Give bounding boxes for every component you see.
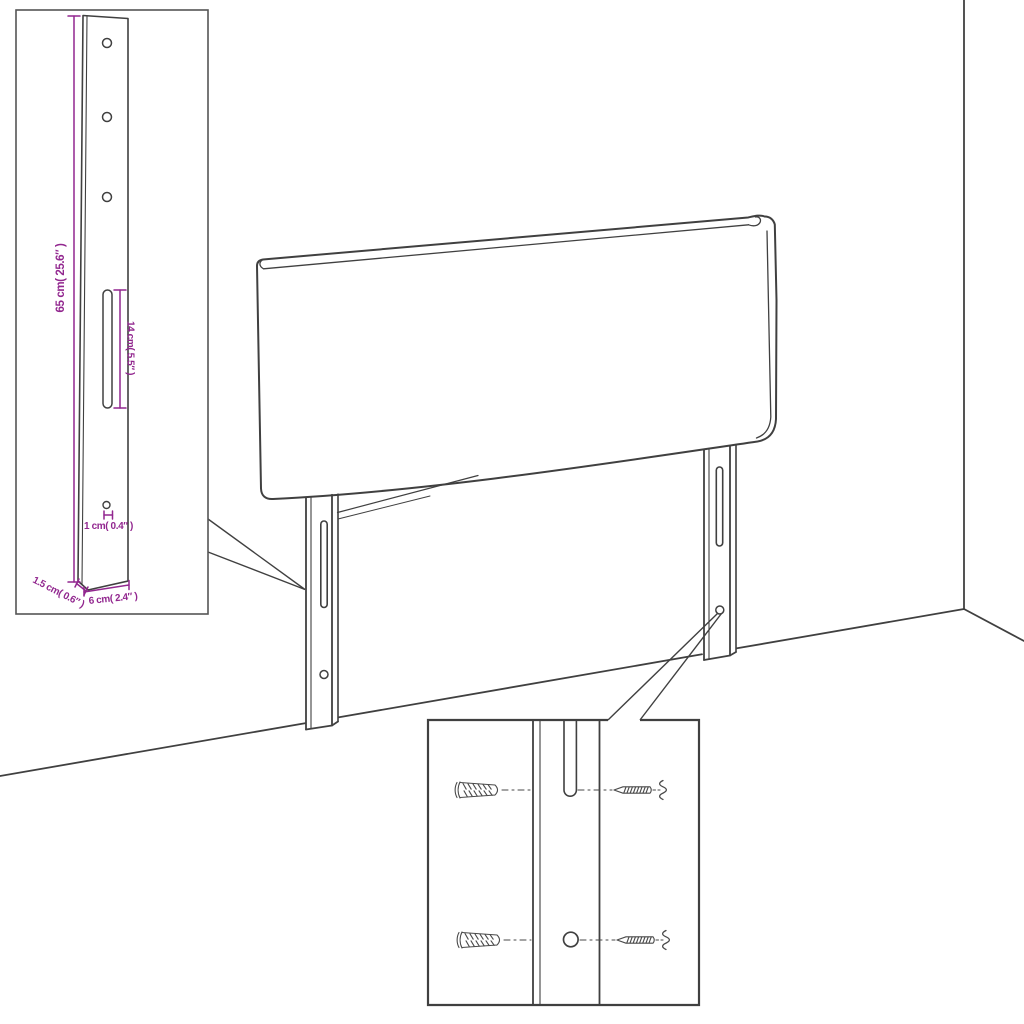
inset-leader-lines-left: [208, 519, 305, 590]
headboard-assembly-diagram: 65 cm( 25.6″ ) 14 cm( 5.5″ ) 1 cm( 0.4″ …: [0, 0, 1024, 1024]
left-leg: [306, 494, 338, 729]
hole-dimension-label: 1 cm( 0.4″ ): [84, 521, 133, 532]
leg-screw-hole: [320, 671, 328, 679]
height-dimension-label: 65 cm( 25.6″ ): [55, 243, 67, 313]
screw-icon: [614, 781, 666, 800]
leader-line: [208, 552, 305, 590]
leader-line: [608, 614, 718, 721]
leg-screw-hole: [716, 606, 724, 614]
spring-symbol-icon: [660, 781, 667, 800]
strip-slot: [564, 721, 576, 796]
floor-line-left-b: [339, 654, 702, 717]
right-leg: [704, 446, 736, 660]
hardware-inset: [428, 720, 699, 1005]
bracket-hole-3: [103, 193, 112, 202]
leader-line: [640, 614, 722, 721]
magnified-leg-strip: [533, 721, 600, 1004]
strip-screw-hole: [564, 932, 579, 947]
leg-slot: [716, 467, 722, 546]
bracket-slot: [103, 290, 112, 408]
headboard: [257, 216, 777, 730]
hardware-parts: [455, 781, 669, 950]
floor-line-left-a: [0, 723, 305, 776]
spring-symbol-icon: [663, 931, 670, 950]
leg-slot: [321, 521, 327, 608]
bracket-hole-1: [103, 39, 112, 48]
wall-plug-icon: [455, 782, 497, 798]
bracket-detail-inset: 65 cm( 25.6″ ) 14 cm( 5.5″ ) 1 cm( 0.4″ …: [16, 10, 208, 614]
slot-dimension-label: 14 cm( 5.5″ ): [125, 321, 136, 375]
headboard-panel: [257, 216, 777, 519]
diagram-canvas: 65 cm( 25.6″ ) 14 cm( 5.5″ ) 1 cm( 0.4″ …: [0, 0, 1024, 1024]
panel-bottom-under-edge-2: [338, 496, 430, 519]
floor-line-right: [964, 609, 1024, 641]
wall-plug-icon: [457, 932, 499, 948]
bracket-hole-2: [103, 113, 112, 122]
alignment-dashes: [502, 790, 615, 940]
leader-line: [208, 519, 305, 590]
floor-line-left-c: [737, 609, 964, 648]
panel-outline: [257, 216, 777, 499]
screw-icon: [617, 931, 669, 950]
bracket-hole-4: [103, 502, 110, 509]
